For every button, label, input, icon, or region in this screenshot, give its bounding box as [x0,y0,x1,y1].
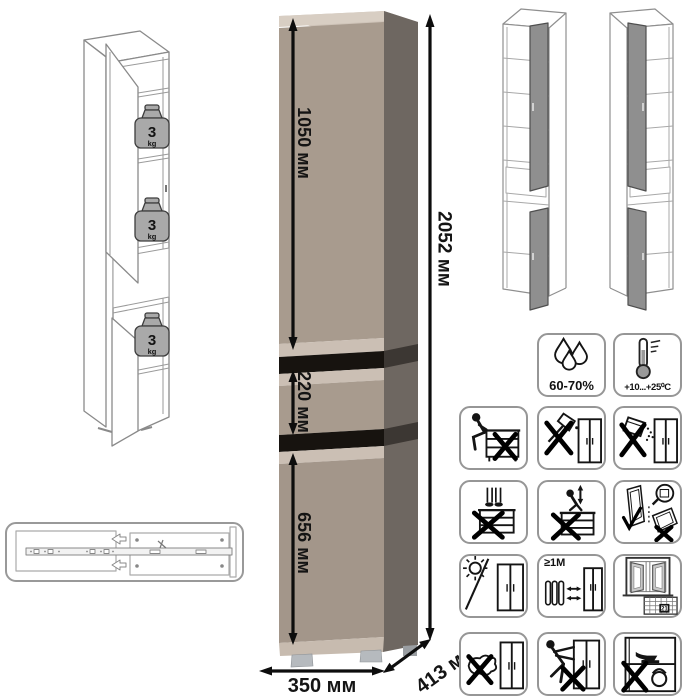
load-unit: kg [148,232,157,241]
foot [360,650,382,662]
no-overload-icon [615,634,680,694]
icon-no-sharp-tools [537,406,606,470]
acclimatization-days: 21 [661,606,668,613]
cabinet-side [383,11,418,652]
icon-avoid-sunlight [459,554,528,618]
icon-temperature-range: +10...+25⁰C [613,333,682,397]
icon-humidity-range: 60-70% [537,333,606,397]
dim-width: 350 мм [288,675,357,697]
temperature-label: +10...+25⁰C [615,382,680,393]
load-unit: kg [148,347,157,356]
dim-bottom-section: 656 мм [294,512,314,574]
no-standing-icon [461,482,526,542]
arrow-total-height [426,14,435,641]
no-dragging-icon [539,634,604,694]
dim-total-height: 2052 мм [434,211,455,287]
dim-top-section: 1050 мм [294,107,314,179]
drawer-slide-diagram [6,523,243,581]
load-unit: kg [148,139,157,148]
icon-no-sitting [459,406,528,470]
dim-drawer-section: 220 мм [294,371,314,433]
furniture-spec-sheet: 3 kg 3 kg 3 kg [0,0,683,700]
no-wet-cloth-icon [461,634,526,694]
no-jumping-icon [539,482,604,542]
humidity-label: 60-70% [539,378,604,393]
icon-no-spilling [613,406,682,470]
no-spilling-icon [615,408,680,468]
no-axe-icon [539,408,604,468]
no-sitting-icon [461,408,526,468]
icon-no-standing [459,480,528,544]
heat-distance-label: ≥1M [544,557,565,569]
transport-upright-icon [615,482,680,542]
icon-no-overloading [613,632,682,696]
icon-no-dragging [537,632,606,696]
door-top [279,22,384,344]
foot [291,654,313,667]
icon-heat-distance: ≥1M [537,554,606,618]
icon-no-jumping [537,480,606,544]
icon-ventilation: 21 [613,554,682,618]
icon-transport-upright [613,480,682,544]
window-calendar-icon: 21 [615,556,680,616]
icon-no-wet-cleaning [459,632,528,696]
no-sun-icon [461,556,526,616]
wireframe-cabinet-pair [503,9,673,310]
